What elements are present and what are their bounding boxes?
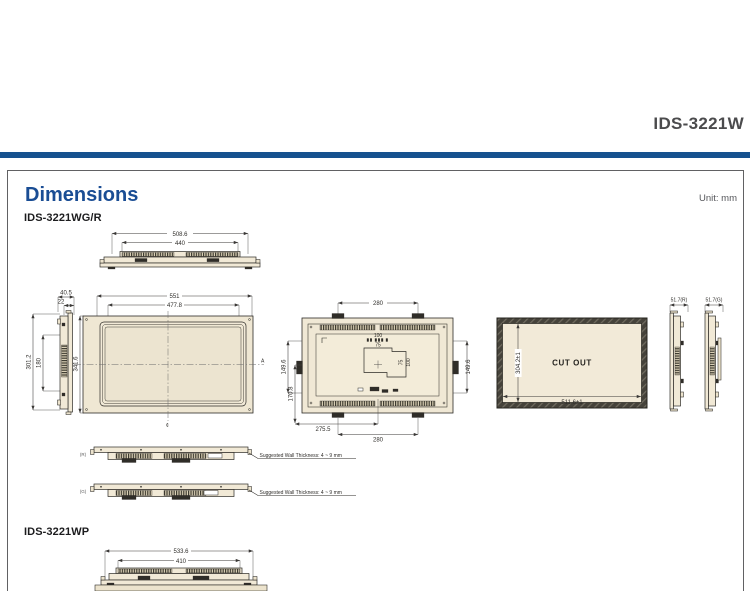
wall-profile-g-body <box>91 484 252 500</box>
vent-strip <box>380 401 435 406</box>
mount-clamp <box>332 413 344 418</box>
top-profile-panel <box>100 252 260 270</box>
dim-rear-bottom1: 275.5 <box>315 427 331 433</box>
dim-cutout-width: 511.6±1 <box>561 400 583 406</box>
dim-side-g-label: 51.7(G) <box>706 298 723 304</box>
mount-clamp <box>297 361 303 374</box>
vent-strip <box>164 491 206 496</box>
vent-strip <box>118 569 172 573</box>
wall-panel-plate <box>95 585 267 591</box>
unit-label: Unit: mm <box>699 193 737 204</box>
dim-side-depth: 40.5 <box>60 291 72 297</box>
wgr-top-profile-drawing: 508.6 440 <box>95 228 265 278</box>
dim-front-inner-width: 477.8 <box>167 303 183 309</box>
dim-side-bezel: 22 <box>58 300 65 306</box>
dim-side-r-label: 51.7(R) <box>671 298 688 304</box>
wall-g-note: Suggested Wall Thickness: 4 ~ 9 mm <box>260 490 342 496</box>
wgr-rear-view-drawing: 280 100 75 75 100 <box>275 293 480 443</box>
wall-r-note: Suggested Wall Thickness: 4 ~ 9 mm <box>260 453 342 459</box>
wall-r-tag: (R) <box>80 452 87 457</box>
vent-strip <box>380 325 435 330</box>
side-profile-r <box>670 311 684 411</box>
dim-front-outer-width: 551 <box>169 294 180 300</box>
dim-vesa-100-v: 100 <box>406 358 412 367</box>
dim-side-outer-height: 301.2 <box>27 354 33 370</box>
header-rule <box>0 152 750 158</box>
dim-top-inner-width: 440 <box>175 241 186 247</box>
dim-vesa-75: 75 <box>375 343 381 349</box>
vent-strip <box>320 325 375 330</box>
mount-clamp <box>453 361 459 374</box>
model-wgr-label: IDS-3221WG/R <box>24 212 102 224</box>
wp-profile-panel <box>95 568 267 591</box>
side-profiles-rg-drawing: 51.7(R) 51.7(G) <box>662 293 748 421</box>
vent-strip <box>164 454 206 459</box>
wall-profile-r-body <box>91 447 252 463</box>
wall-profile-r-drawing: (R) Suggested Wall Thickness: 4 ~ 9 mm <box>56 441 358 475</box>
vent-strip <box>116 491 152 496</box>
dim-rear-left-height: 149.6 <box>282 359 288 375</box>
rear-view-body <box>297 314 459 418</box>
vent-strip <box>116 454 152 459</box>
side-view-body <box>58 311 73 415</box>
dim-front-outer-height: 341.6 <box>74 356 80 372</box>
datasheet-page: { "header": { "product": "IDS-3221W" }, … <box>0 0 750 591</box>
dim-vesa-75-v: 75 <box>399 360 405 366</box>
section-a-label: A <box>261 359 265 365</box>
mount-clamp <box>412 413 424 418</box>
centerline-symbol: ¢ <box>166 423 169 429</box>
vent-strip <box>186 569 240 573</box>
model-wp-label: IDS-3221WP <box>24 526 89 538</box>
dim-rear-right-height: 149.6 <box>466 359 472 375</box>
wall-profile-g-drawing: (G) Suggested Wall Thickness: 4 ~ 9 mm <box>56 478 358 512</box>
dimensions-heading: Dimensions <box>25 184 138 207</box>
cutout-label: CUT OUT <box>552 359 592 368</box>
dim-side-inner-height: 180 <box>37 357 43 368</box>
vent-strip <box>186 253 238 257</box>
dim-vesa-100: 100 <box>374 333 383 339</box>
page-title: IDS-3221W <box>653 114 744 134</box>
wall-g-tag: (G) <box>80 489 87 494</box>
dim-rear-bottom2: 280 <box>373 438 384 444</box>
mount-clamp <box>412 314 424 319</box>
dim-rear-mount-top: 280 <box>373 301 384 307</box>
wgr-front-view-drawing: 551 477.8 341.6 269.5 A ¢ <box>72 288 270 430</box>
dim-rear-left-height2: 170.8 <box>289 386 295 402</box>
mount-clamp <box>332 314 344 319</box>
dim-cutout-height: 304.2±1 <box>516 352 522 374</box>
vent-grille <box>62 345 68 377</box>
vent-strip <box>320 401 375 406</box>
cutout-drawing: CUT OUT 304.2±1 511.6±1 <box>488 308 656 414</box>
vent-grille <box>675 347 680 375</box>
dim-wp-outer-width: 533.6 <box>173 549 189 555</box>
dim-wp-inner-width: 410 <box>176 559 187 565</box>
side-profile-g-plate <box>718 338 721 380</box>
wp-top-profile-drawing: 533.6 410 <box>93 543 271 591</box>
dim-top-outer-width: 508.6 <box>172 232 188 238</box>
vent-strip <box>122 253 174 257</box>
side-profile-g <box>705 311 719 411</box>
